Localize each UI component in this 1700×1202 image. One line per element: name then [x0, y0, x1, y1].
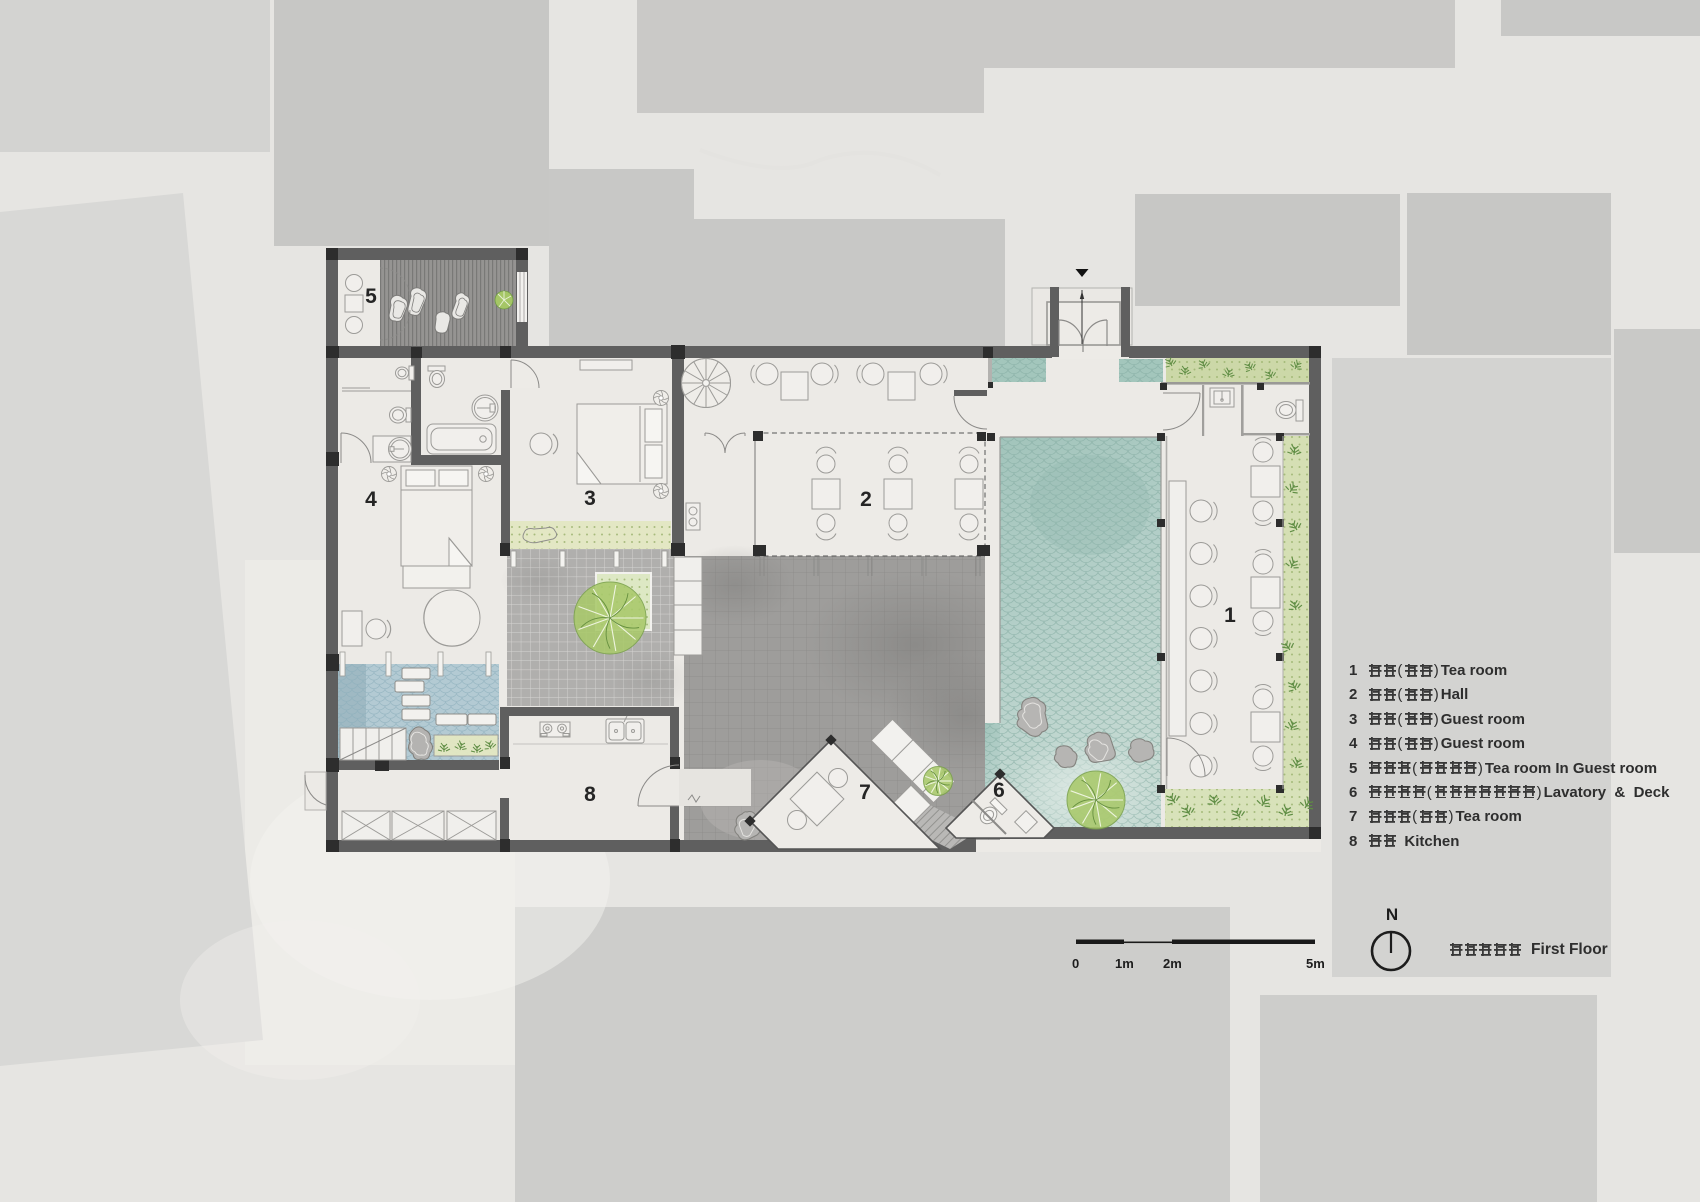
svg-text:8: 8	[584, 783, 596, 806]
svg-text:3: 3	[584, 487, 596, 510]
svg-text:1: 1	[1224, 604, 1236, 627]
svg-text:2: 2	[860, 488, 872, 511]
svg-text:4: 4	[365, 488, 377, 511]
svg-text:7: 7	[859, 781, 871, 804]
svg-text:5: 5	[365, 285, 377, 308]
svg-text:6: 6	[993, 779, 1005, 802]
